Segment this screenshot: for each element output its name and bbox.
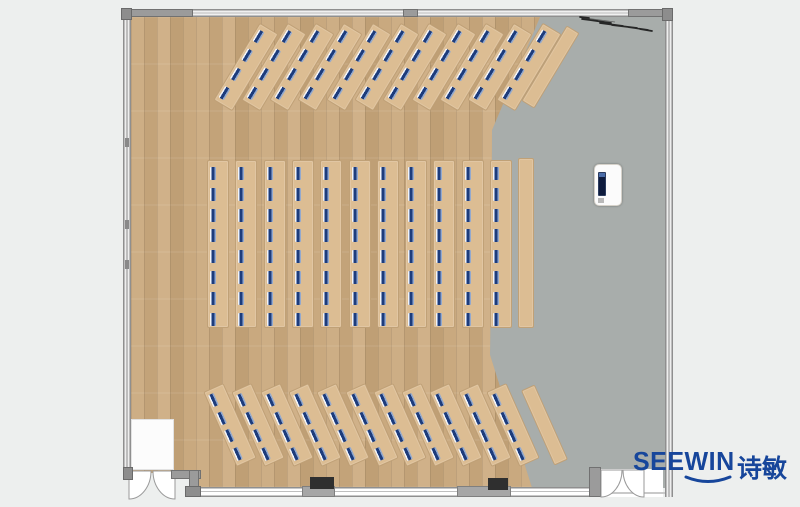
workstation-marker <box>301 411 312 425</box>
logo-smile-arc-icon <box>683 475 733 487</box>
workstation-marker <box>244 411 255 425</box>
workstation-marker <box>329 411 340 425</box>
workstation-marker <box>380 209 386 222</box>
workstation-marker <box>465 229 471 242</box>
workstation-marker <box>343 67 355 81</box>
workstation-marker <box>267 209 273 222</box>
structural-column <box>488 478 508 490</box>
workstation-marker <box>380 271 386 284</box>
workstation-marker <box>465 313 471 326</box>
workstation-marker <box>352 188 358 201</box>
workstation-marker <box>512 67 524 81</box>
workstation-marker <box>238 167 244 180</box>
workstation-marker <box>493 271 499 284</box>
workstation-marker <box>439 48 451 62</box>
workstation-marker <box>408 271 414 284</box>
floor-plan-canvas: SEEWIN 诗敏 <box>0 0 800 507</box>
desk-strip <box>490 160 512 328</box>
workstation-marker <box>323 250 329 263</box>
workstation-marker <box>380 292 386 305</box>
workstation-marker <box>297 48 309 62</box>
workstation-marker <box>408 292 414 305</box>
workstation-marker <box>434 393 445 407</box>
workstation-marker <box>218 86 230 100</box>
workstation-marker <box>416 86 428 100</box>
workstation-marker <box>373 446 384 460</box>
workstation-marker <box>210 250 216 263</box>
sideboard-strip <box>518 158 534 328</box>
workstation-marker <box>295 229 301 242</box>
workstation-marker <box>515 446 526 460</box>
workstation-marker <box>323 229 329 242</box>
workstation-marker <box>456 67 468 81</box>
workstation-marker <box>267 167 273 180</box>
workstation-marker <box>478 29 490 43</box>
workstation-marker <box>471 411 482 425</box>
workstation-marker <box>465 188 471 201</box>
desk-strip <box>235 160 257 328</box>
workstation-marker <box>501 86 513 100</box>
workstation-marker <box>323 188 329 201</box>
workstation-marker <box>326 48 338 62</box>
workstation-marker <box>267 313 273 326</box>
workstation-marker <box>288 446 299 460</box>
workstation-marker <box>394 29 406 43</box>
workstation-marker <box>295 271 301 284</box>
workstation-marker <box>436 271 442 284</box>
wall-elbow-corner <box>185 486 201 497</box>
workstation-marker <box>281 429 292 443</box>
workstation-marker <box>280 29 292 43</box>
entrance-alcove <box>131 419 174 470</box>
workstation-marker <box>399 67 411 81</box>
workstation-marker <box>465 209 471 222</box>
workstation-marker <box>430 446 441 460</box>
workstation-marker <box>444 86 456 100</box>
workstation-marker <box>410 48 422 62</box>
workstation-marker <box>408 188 414 201</box>
workstation-marker <box>269 48 281 62</box>
workstation-marker <box>323 271 329 284</box>
workstation-marker <box>317 446 328 460</box>
workstation-marker <box>380 188 386 201</box>
door-leaf-icon <box>601 470 622 497</box>
workstation-marker <box>238 250 244 263</box>
wall-top-segment-left <box>123 9 193 17</box>
workstation-marker <box>267 292 273 305</box>
workstation-marker <box>295 167 301 180</box>
workstation-marker <box>323 313 329 326</box>
workstation-marker <box>493 292 499 305</box>
workstation-marker <box>331 86 343 100</box>
workstation-marker <box>491 393 502 407</box>
workstation-marker <box>365 29 377 43</box>
workstation-marker <box>352 209 358 222</box>
desk-strip <box>462 160 484 328</box>
workstation-marker <box>463 393 474 407</box>
workstation-marker <box>210 167 216 180</box>
workstation-marker <box>238 292 244 305</box>
workstation-marker <box>352 250 358 263</box>
workstation-marker <box>493 229 499 242</box>
workstation-marker <box>232 446 243 460</box>
workstation-marker <box>208 393 219 407</box>
workstation-marker <box>323 209 329 222</box>
workstation-marker <box>236 393 247 407</box>
workstation-marker <box>380 167 386 180</box>
workstation-marker <box>422 29 434 43</box>
workstation-marker <box>408 313 414 326</box>
workstation-marker <box>408 209 414 222</box>
wall-top-mullion-post <box>403 9 418 17</box>
window-wall-bottom <box>197 487 593 497</box>
podium-base-icon <box>598 198 604 203</box>
workstation-marker <box>473 86 485 100</box>
workstation-marker <box>275 86 287 100</box>
brand-logo: SEEWIN 诗敏 <box>633 448 798 492</box>
workstation-marker <box>352 229 358 242</box>
workstation-marker <box>295 250 301 263</box>
workstation-marker <box>210 271 216 284</box>
workstation-marker <box>252 429 263 443</box>
workstation-marker <box>337 29 349 43</box>
workstation-marker <box>238 313 244 326</box>
desk-strip <box>349 160 371 328</box>
desk-strip <box>320 160 342 328</box>
workstation-marker <box>402 446 413 460</box>
workstation-marker <box>408 167 414 180</box>
workstation-marker <box>295 292 301 305</box>
workstation-marker <box>436 209 442 222</box>
presenter-podium <box>594 164 622 206</box>
brand-wordmark: SEEWIN <box>633 448 735 478</box>
workstation-marker <box>382 48 394 62</box>
workstation-marker <box>321 393 332 407</box>
wall-right <box>665 9 673 497</box>
workstation-marker <box>493 313 499 326</box>
pen-scribble-annotation <box>577 13 655 33</box>
workstation-marker <box>408 229 414 242</box>
wall-left-tick <box>125 260 129 269</box>
workstation-marker <box>210 209 216 222</box>
workstation-marker <box>493 250 499 263</box>
structural-column <box>310 477 334 489</box>
workstation-marker <box>507 29 519 43</box>
workstation-marker <box>465 167 471 180</box>
workstation-marker <box>388 86 400 100</box>
workstation-marker <box>210 229 216 242</box>
workstation-marker <box>406 393 417 407</box>
workstation-marker <box>303 86 315 100</box>
workstation-marker <box>354 48 366 62</box>
workstation-marker <box>267 271 273 284</box>
workstation-marker <box>246 86 258 100</box>
workstation-marker <box>337 429 348 443</box>
workstation-marker <box>524 48 536 62</box>
workstation-marker <box>260 446 271 460</box>
workstation-marker <box>450 429 461 443</box>
workstation-marker <box>267 188 273 201</box>
workstation-marker <box>386 411 397 425</box>
workstation-marker <box>465 271 471 284</box>
workstation-marker <box>422 429 433 443</box>
workstation-marker <box>467 48 479 62</box>
workstation-marker <box>286 67 298 81</box>
workstation-marker <box>210 292 216 305</box>
workstation-marker <box>365 429 376 443</box>
workstation-marker <box>436 188 442 201</box>
desk-strip <box>207 160 229 328</box>
workstation-marker <box>479 429 490 443</box>
wall-left-tick <box>125 220 129 229</box>
workstation-marker <box>352 271 358 284</box>
workstation-marker <box>427 67 439 81</box>
workstation-marker <box>408 250 414 263</box>
workstation-marker <box>258 67 270 81</box>
workstation-marker <box>380 229 386 242</box>
workstation-marker <box>493 209 499 222</box>
workstation-marker <box>507 429 518 443</box>
workstation-marker <box>210 188 216 201</box>
workstation-marker <box>352 292 358 305</box>
workstation-marker <box>493 167 499 180</box>
wall-left-tick <box>125 138 129 147</box>
double-door-bottom-left <box>128 470 176 501</box>
brand-cjk-name: 诗敏 <box>737 449 787 485</box>
workstation-marker <box>360 86 372 100</box>
corner-post-top-right <box>662 8 673 21</box>
workstation-marker <box>484 67 496 81</box>
wall-left <box>123 9 131 473</box>
workstation-marker <box>224 429 235 443</box>
workstation-marker <box>238 209 244 222</box>
workstation-marker <box>252 29 264 43</box>
workstation-marker <box>380 250 386 263</box>
workstation-marker <box>352 167 358 180</box>
workstation-marker <box>450 29 462 43</box>
workstation-marker <box>309 429 320 443</box>
workstation-marker <box>295 313 301 326</box>
desk-strip <box>377 160 399 328</box>
workstation-marker <box>267 229 273 242</box>
workstation-marker <box>493 188 499 201</box>
workstation-marker <box>535 29 547 43</box>
desk-strip <box>264 160 286 328</box>
workstation-marker <box>323 292 329 305</box>
wall-post-bottom-left <box>123 467 133 480</box>
desk-strip <box>433 160 455 328</box>
workstation-marker <box>323 167 329 180</box>
workstation-marker <box>314 67 326 81</box>
workstation-marker <box>345 446 356 460</box>
workstation-marker <box>378 393 389 407</box>
workstation-marker <box>238 188 244 201</box>
workstation-marker <box>436 292 442 305</box>
corner-post-top-left <box>121 8 132 20</box>
workstation-marker <box>357 411 368 425</box>
workstation-marker <box>241 48 253 62</box>
podium-screen-icon <box>598 172 606 196</box>
workstation-marker <box>267 250 273 263</box>
workstation-marker <box>238 271 244 284</box>
workstation-marker <box>293 393 304 407</box>
workstation-marker <box>371 67 383 81</box>
desk-layer <box>0 0 800 507</box>
workstation-marker <box>380 313 386 326</box>
workstation-marker <box>265 393 276 407</box>
workstation-marker <box>436 250 442 263</box>
workstation-marker <box>442 411 453 425</box>
workstation-marker <box>499 411 510 425</box>
workstation-marker <box>414 411 425 425</box>
workstation-marker <box>465 292 471 305</box>
workstation-marker <box>229 67 241 81</box>
workstation-marker <box>309 29 321 43</box>
workstation-marker <box>465 250 471 263</box>
desk-strip <box>405 160 427 328</box>
workstation-marker <box>487 446 498 460</box>
workstation-marker <box>295 209 301 222</box>
workstation-marker <box>238 229 244 242</box>
workstation-marker <box>295 188 301 201</box>
workstation-marker <box>436 229 442 242</box>
desk-strip <box>292 160 314 328</box>
workstation-marker <box>273 411 284 425</box>
workstation-marker <box>436 313 442 326</box>
workstation-marker <box>350 393 361 407</box>
workstation-marker <box>210 313 216 326</box>
workstation-marker <box>436 167 442 180</box>
workstation-marker <box>216 411 227 425</box>
workstation-marker <box>495 48 507 62</box>
workstation-marker <box>394 429 405 443</box>
workstation-marker <box>352 313 358 326</box>
workstation-marker <box>458 446 469 460</box>
